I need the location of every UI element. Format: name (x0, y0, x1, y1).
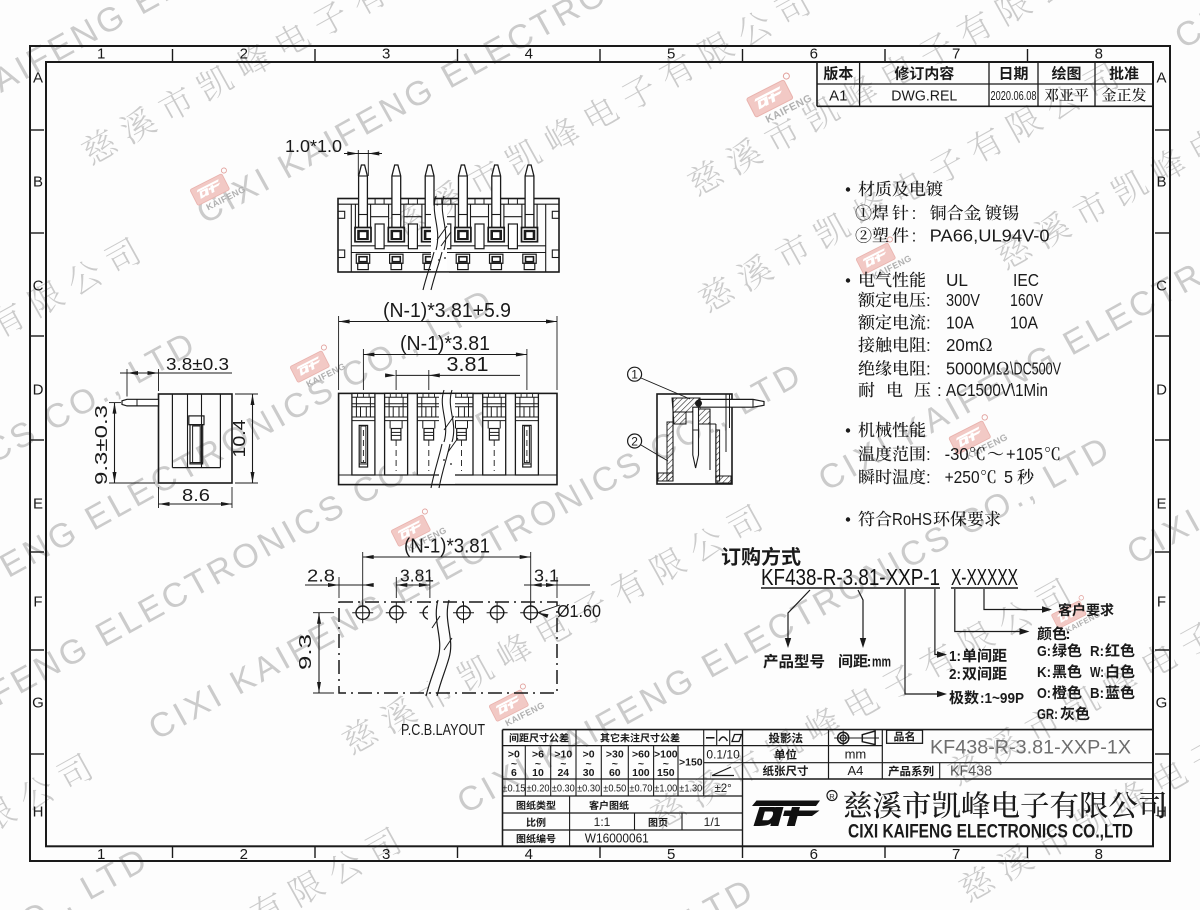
svg-text:K:: K: (1037, 664, 1051, 681)
svg-text:6: 6 (511, 767, 517, 779)
svg-text:10A: 10A (946, 313, 974, 333)
svg-text:KF438-R-3.81-XXP-1X: KF438-R-3.81-XXP-1X (930, 738, 1131, 759)
svg-text:AC1500V\1Min: AC1500V\1Min (946, 380, 1048, 400)
svg-text:±0.30: ±0.30 (552, 784, 575, 795)
svg-text:4: 4 (525, 46, 533, 63)
svg-text:(N-1)*3.81: (N-1)*3.81 (400, 333, 490, 355)
svg-text:10.4: 10.4 (229, 419, 249, 457)
svg-text:±0.70: ±0.70 (629, 784, 652, 795)
svg-text:1:1: 1:1 (594, 815, 611, 829)
svg-text:±1.30: ±1.30 (679, 784, 702, 795)
svg-text:A4: A4 (847, 763, 863, 778)
svg-text:1:: 1: (949, 648, 961, 665)
svg-text:B:: B: (1090, 685, 1104, 702)
svg-text:2: 2 (631, 434, 638, 448)
svg-text:>150: >150 (679, 757, 703, 769)
svg-text:G: G (1156, 695, 1168, 712)
svg-text:X-XXXXX: X-XXXXX (951, 564, 1018, 590)
svg-text:2.8: 2.8 (307, 566, 335, 586)
svg-text:KF438: KF438 (950, 762, 992, 779)
svg-text:G:: G: (1037, 643, 1051, 660)
svg-text:GR:: GR: (1037, 706, 1058, 723)
svg-text::: : (867, 654, 872, 671)
svg-text:+105: +105 (1006, 444, 1043, 464)
svg-text:0.1/10: 0.1/10 (706, 748, 740, 762)
svg-text:H: H (33, 804, 44, 821)
svg-text:60: 60 (609, 767, 621, 779)
svg-text:150: 150 (657, 767, 675, 779)
svg-text:PA66,UL94V-0: PA66,UL94V-0 (930, 226, 1050, 246)
svg-text:20m: 20m (946, 335, 979, 355)
svg-text::: : (937, 381, 942, 400)
svg-text:mm: mm (845, 747, 867, 762)
svg-text:R:: R: (1090, 643, 1104, 660)
svg-text::: : (926, 360, 931, 379)
svg-text::: : (926, 336, 931, 355)
svg-text:2020.06.08: 2020.06.08 (991, 89, 1037, 103)
svg-text:8.6: 8.6 (182, 485, 210, 505)
svg-text:-30: -30 (945, 444, 969, 464)
svg-text:,: , (978, 206, 982, 223)
svg-text:B: B (1156, 174, 1166, 191)
svg-text:F: F (1157, 594, 1166, 611)
svg-text:CIXI KAIFENG ELECTRONICS CO.,L: CIXI KAIFENG ELECTRONICS CO.,LTD (848, 821, 1133, 843)
svg-text:±0.20: ±0.20 (527, 784, 550, 795)
svg-text:P.C.B.LAYOUT: P.C.B.LAYOUT (401, 722, 485, 739)
svg-text:5: 5 (667, 46, 675, 63)
svg-text:1: 1 (97, 846, 105, 863)
svg-text:C: C (1156, 278, 1167, 295)
svg-text:10: 10 (532, 767, 544, 779)
svg-text:O:: O: (1037, 685, 1051, 702)
svg-text:6: 6 (810, 846, 818, 863)
svg-text:±1.00: ±1.00 (654, 784, 677, 795)
svg-text:2:: 2: (949, 666, 961, 683)
svg-text:3.8±0.3: 3.8±0.3 (166, 354, 229, 374)
svg-text:\DC500V: \DC500V (1010, 359, 1061, 379)
svg-text:10A: 10A (1010, 313, 1038, 333)
svg-text:+250: +250 (945, 467, 980, 487)
svg-text:5000M: 5000M (946, 359, 996, 379)
svg-text:24: 24 (557, 767, 569, 779)
svg-text:Ø1.60: Ø1.60 (557, 601, 601, 621)
svg-text:±0.30: ±0.30 (577, 784, 600, 795)
svg-text:1: 1 (631, 368, 638, 382)
svg-text:A: A (33, 70, 43, 87)
svg-text:E: E (33, 496, 43, 513)
svg-text:1: 1 (97, 46, 105, 63)
svg-text:mm: mm (872, 654, 891, 671)
svg-text:W16000061: W16000061 (585, 831, 649, 846)
svg-text:UL: UL (946, 270, 968, 290)
svg-text:A: A (1156, 70, 1166, 87)
svg-text:3: 3 (382, 846, 390, 863)
svg-text:6: 6 (810, 46, 818, 63)
svg-text:(N-1)*3.81+5.9: (N-1)*3.81+5.9 (383, 300, 511, 322)
svg-text:KF438-R-3.81-XXP-1: KF438-R-3.81-XXP-1 (761, 564, 940, 590)
svg-text:2: 2 (240, 46, 248, 63)
svg-text::: : (926, 445, 931, 464)
svg-text:8: 8 (1095, 846, 1103, 863)
svg-text:(N-1)*3.81: (N-1)*3.81 (404, 536, 490, 558)
svg-text:G: G (32, 695, 44, 712)
svg-text:5: 5 (667, 846, 675, 863)
svg-text:D: D (1156, 382, 1167, 399)
svg-text:±0.15: ±0.15 (502, 784, 525, 795)
svg-text:±2°: ±2° (714, 783, 731, 795)
svg-text::: : (1066, 626, 1071, 643)
svg-text:RoHS: RoHS (892, 509, 932, 529)
svg-text:±0.50: ±0.50 (603, 784, 626, 795)
svg-text:9.3: 9.3 (295, 634, 315, 670)
svg-text:DWG.REL: DWG.REL (891, 88, 957, 105)
svg-text:E: E (1156, 496, 1166, 513)
svg-text::: : (912, 204, 917, 223)
svg-text:B: B (33, 174, 43, 191)
svg-text:4: 4 (525, 846, 533, 863)
svg-text:3.81: 3.81 (447, 354, 489, 376)
svg-text:1/1: 1/1 (704, 815, 721, 829)
svg-text:8: 8 (1095, 46, 1103, 63)
svg-text:160V: 160V (1010, 290, 1043, 310)
svg-text:7: 7 (952, 46, 960, 63)
svg-text:300V: 300V (946, 290, 980, 310)
svg-text:100: 100 (632, 767, 650, 779)
svg-text:9.3±0.3: 9.3±0.3 (91, 405, 111, 485)
svg-text::: : (926, 468, 931, 487)
svg-text:D: D (33, 382, 44, 399)
svg-text::: : (912, 227, 917, 246)
svg-text:7: 7 (952, 846, 960, 863)
svg-text:R: R (829, 792, 835, 801)
svg-text:C: C (33, 278, 44, 295)
svg-text:1.0*1.0: 1.0*1.0 (285, 136, 342, 156)
svg-text:W:: W: (1090, 664, 1104, 681)
svg-text:30: 30 (583, 767, 595, 779)
svg-text:A1: A1 (829, 88, 847, 105)
svg-text:IEC: IEC (1013, 270, 1039, 290)
svg-text:3.1: 3.1 (534, 566, 559, 586)
svg-text:5: 5 (1004, 467, 1013, 487)
svg-text::1~99P: :1~99P (980, 690, 1024, 707)
svg-text:F: F (33, 594, 42, 611)
svg-text::: : (926, 291, 931, 310)
svg-text:2: 2 (240, 846, 248, 863)
svg-text:3.81: 3.81 (400, 566, 434, 586)
svg-text::: : (926, 314, 931, 333)
svg-text:3: 3 (382, 46, 390, 63)
